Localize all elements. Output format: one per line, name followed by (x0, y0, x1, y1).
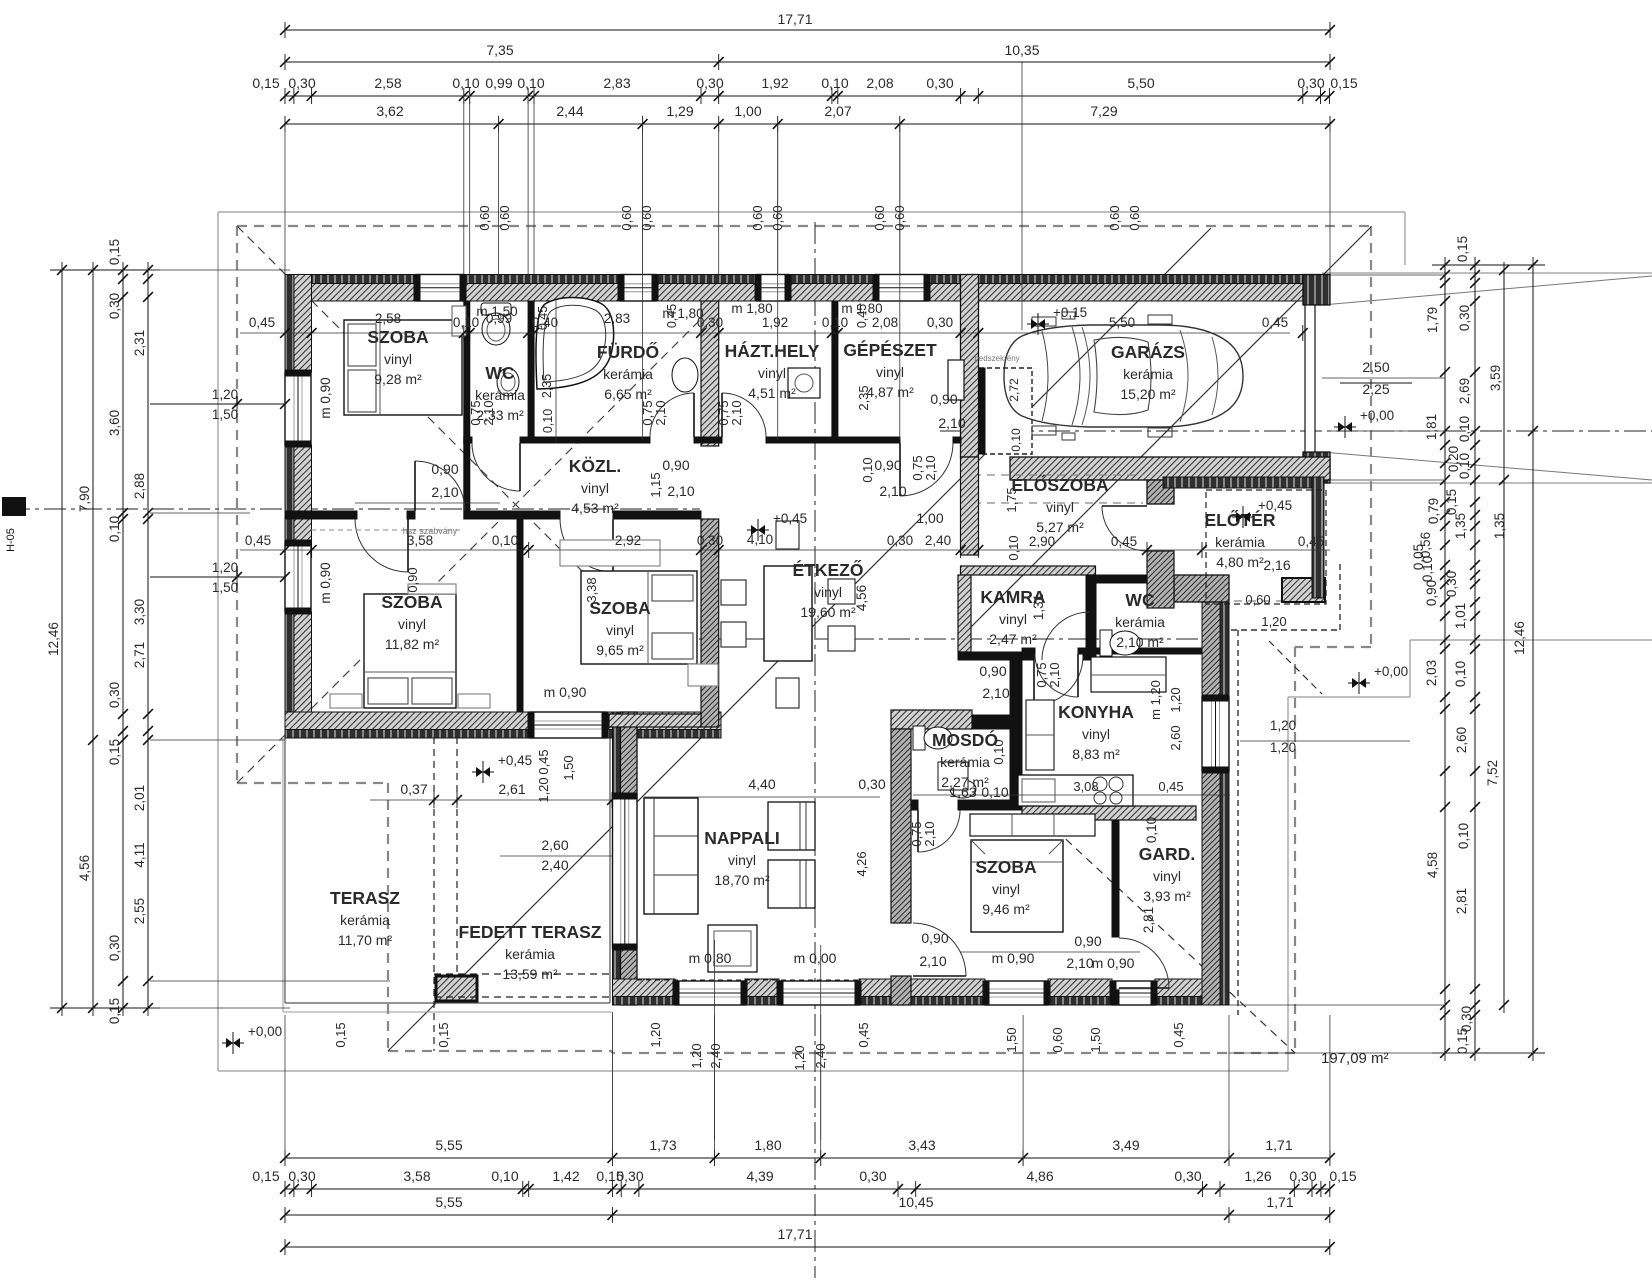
svg-text:0,15: 0,15 (1455, 1028, 1470, 1054)
svg-text:+0,15: +0,15 (1053, 305, 1087, 320)
svg-text:3,43: 3,43 (908, 1137, 935, 1153)
svg-text:2,88: 2,88 (132, 473, 147, 499)
svg-text:3,60: 3,60 (107, 410, 122, 436)
svg-text:9,28 m²: 9,28 m² (374, 371, 422, 387)
svg-text:0,30: 0,30 (1174, 1168, 1201, 1184)
svg-text:GARÁZS: GARÁZS (1111, 341, 1185, 362)
svg-text:2,83: 2,83 (604, 311, 630, 326)
svg-text:1,20: 1,20 (1261, 614, 1286, 629)
svg-text:+0,00: +0,00 (1360, 408, 1394, 423)
svg-text:0,45: 0,45 (855, 304, 869, 328)
svg-text:12,46: 12,46 (1512, 621, 1527, 655)
svg-text:0,10: 0,10 (541, 409, 555, 433)
svg-text:2,44: 2,44 (556, 103, 583, 119)
svg-text:WC: WC (1125, 590, 1155, 610)
svg-text:0,10: 0,10 (822, 315, 848, 330)
svg-text:4,56: 4,56 (77, 855, 92, 881)
svg-text:11,82 m²: 11,82 m² (385, 636, 440, 652)
svg-text:0,45: 0,45 (1111, 534, 1137, 549)
svg-text:1,71: 1,71 (1265, 1137, 1292, 1153)
svg-text:TERASZ: TERASZ (330, 888, 400, 908)
svg-text:vinyl: vinyl (814, 584, 842, 600)
svg-text:11,70 m²: 11,70 m² (338, 932, 393, 948)
svg-text:1,31: 1,31 (1031, 594, 1046, 620)
svg-text:15,20 m²: 15,20 m² (1120, 386, 1176, 402)
svg-text:H-05: H-05 (5, 528, 17, 552)
svg-text:m 0,90: m 0,90 (544, 684, 587, 700)
svg-text:ÉTKEZŐ: ÉTKEZŐ (793, 559, 864, 580)
svg-text:m 0,90: m 0,90 (318, 377, 333, 418)
svg-text:4,11: 4,11 (132, 842, 147, 867)
svg-text:3,58: 3,58 (403, 1168, 430, 1184)
svg-text:0,15: 0,15 (107, 998, 122, 1024)
svg-text:0,10: 0,10 (452, 75, 479, 91)
svg-text:0,30: 0,30 (859, 1168, 886, 1184)
svg-text:0,30: 0,30 (1289, 1168, 1316, 1184)
svg-text:0,30: 0,30 (616, 1168, 643, 1184)
svg-text:m 0,90: m 0,90 (992, 950, 1035, 966)
svg-text:0,45: 0,45 (1158, 779, 1183, 794)
svg-text:4,26: 4,26 (854, 851, 869, 876)
svg-text:2,10: 2,10 (431, 484, 458, 500)
svg-text:0,60: 0,60 (770, 205, 785, 230)
svg-text:0,60: 0,60 (619, 205, 634, 230)
svg-text:4,40: 4,40 (748, 776, 775, 792)
svg-text:0,15: 0,15 (252, 1168, 279, 1184)
svg-text:NAPPALI: NAPPALI (704, 828, 780, 848)
svg-text:1,00: 1,00 (916, 510, 943, 526)
svg-text:0,10: 0,10 (1456, 823, 1471, 849)
svg-text:2,10: 2,10 (653, 400, 668, 425)
svg-text:2,40: 2,40 (813, 1043, 828, 1068)
svg-text:0,90: 0,90 (930, 391, 957, 407)
svg-text:0,60: 0,60 (872, 205, 887, 230)
svg-text:kerámia: kerámia (1123, 366, 1173, 382)
svg-text:1,42: 1,42 (552, 1168, 579, 1184)
svg-text:2,35: 2,35 (856, 385, 871, 410)
svg-text:7,29: 7,29 (1090, 103, 1117, 119)
svg-text:0,90: 0,90 (431, 461, 458, 477)
svg-text:0,90: 0,90 (874, 457, 901, 473)
svg-text:4,53 m²: 4,53 m² (571, 500, 619, 516)
svg-text:0,15: 0,15 (1444, 489, 1459, 515)
svg-text:17,71: 17,71 (777, 11, 812, 27)
svg-text:0,15: 0,15 (1455, 236, 1470, 262)
svg-text:SZOBA: SZOBA (975, 857, 1037, 877)
svg-text:kerámia: kerámia (1215, 534, 1265, 550)
svg-text:0,60: 0,60 (892, 205, 907, 230)
svg-text:0,30: 0,30 (1457, 305, 1472, 331)
svg-text:9,46 m²: 9,46 m² (982, 901, 1030, 917)
svg-text:0,90: 0,90 (405, 567, 420, 592)
svg-text:kerámia: kerámia (505, 946, 555, 962)
svg-text:m 0,00: m 0,00 (794, 950, 837, 966)
svg-text:vinyl: vinyl (999, 611, 1027, 627)
svg-text:vinyl: vinyl (1153, 868, 1181, 884)
svg-text:+0,00: +0,00 (248, 1024, 282, 1039)
svg-text:4,58: 4,58 (1425, 852, 1440, 878)
svg-text:0,60: 0,60 (750, 205, 765, 230)
svg-text:2,10: 2,10 (879, 483, 906, 499)
svg-text:6,65 m²: 6,65 m² (604, 386, 652, 402)
svg-text:0,15: 0,15 (252, 75, 279, 91)
svg-text:GARD.: GARD. (1139, 844, 1195, 864)
svg-text:3,59: 3,59 (1488, 365, 1503, 391)
svg-text:0,10: 0,10 (517, 75, 544, 91)
svg-text:8,83 m²: 8,83 m² (1072, 746, 1120, 762)
svg-text:1,20: 1,20 (648, 1022, 663, 1047)
svg-text:1,00: 1,00 (734, 103, 761, 119)
svg-text:1,75: 1,75 (1004, 487, 1019, 512)
svg-text:2,40: 2,40 (925, 533, 951, 548)
svg-text:KÖZL.: KÖZL. (569, 456, 622, 476)
svg-text:2,81: 2,81 (1141, 907, 1156, 933)
svg-text:0,10: 0,10 (1420, 556, 1435, 582)
svg-text:0,45: 0,45 (1298, 534, 1324, 549)
svg-text:0,90: 0,90 (921, 930, 948, 946)
svg-text:vinyl: vinyl (606, 622, 634, 638)
svg-text:kerámia: kerámia (603, 366, 653, 382)
svg-text:3,62: 3,62 (376, 103, 403, 119)
svg-text:ELŐSZOBA: ELŐSZOBA (1011, 474, 1109, 495)
svg-text:2,60: 2,60 (1454, 727, 1469, 753)
svg-text:0,10: 0,10 (981, 784, 1008, 800)
svg-text:0,60: 0,60 (497, 205, 512, 230)
svg-text:1,20: 1,20 (689, 1043, 704, 1068)
svg-text:0,45: 0,45 (536, 749, 551, 774)
svg-text:5,50: 5,50 (1127, 75, 1154, 91)
svg-text:1,20: 1,20 (1168, 687, 1183, 712)
svg-text:0,15: 0,15 (1330, 75, 1357, 91)
svg-text:0,15: 0,15 (436, 1022, 451, 1047)
svg-text:0,60: 0,60 (1127, 205, 1142, 230)
svg-text:4,87 m²: 4,87 m² (866, 384, 914, 400)
svg-text:2,08: 2,08 (866, 75, 893, 91)
svg-text:0,30: 0,30 (1444, 571, 1459, 597)
svg-text:1,81: 1,81 (1424, 414, 1439, 440)
svg-text:1,50: 1,50 (212, 580, 238, 595)
svg-text:0,10: 0,10 (1453, 661, 1468, 687)
svg-text:2,10: 2,10 (667, 483, 694, 499)
svg-text:vinyl: vinyl (581, 480, 609, 496)
svg-text:0,10: 0,10 (1457, 416, 1472, 442)
svg-text:0,60: 0,60 (639, 205, 654, 230)
svg-text:2,83: 2,83 (603, 75, 630, 91)
svg-text:1,20: 1,20 (212, 560, 238, 575)
svg-text:KONYHA: KONYHA (1058, 702, 1134, 722)
svg-text:0,10: 0,10 (991, 739, 1006, 764)
svg-text:2,58: 2,58 (375, 311, 401, 326)
svg-text:4,80 m²: 4,80 m² (1216, 554, 1264, 570)
svg-text:10,35: 10,35 (1004, 42, 1039, 58)
svg-text:197,09 m²: 197,09 m² (1321, 1050, 1389, 1067)
svg-text:2,60: 2,60 (1168, 725, 1183, 750)
svg-text:2,10: 2,10 (922, 821, 937, 846)
svg-text:0,45: 0,45 (249, 315, 275, 330)
svg-text:1,79: 1,79 (1425, 307, 1440, 333)
svg-text:2,47 m²: 2,47 m² (989, 631, 1037, 647)
svg-text:7,90: 7,90 (77, 486, 92, 512)
svg-text:0,30: 0,30 (107, 293, 122, 319)
svg-text:12,46: 12,46 (46, 622, 61, 656)
svg-text:0,60: 0,60 (1050, 1027, 1065, 1052)
svg-text:1,92: 1,92 (761, 75, 788, 91)
svg-text:2,10: 2,10 (982, 685, 1009, 701)
svg-text:2,10 m²: 2,10 m² (1116, 634, 1164, 650)
svg-text:1,50: 1,50 (561, 755, 576, 780)
svg-text:vinyl: vinyl (992, 881, 1020, 897)
svg-text:2,71: 2,71 (132, 642, 147, 668)
svg-text:1,20: 1,20 (212, 387, 238, 402)
svg-text:0,90: 0,90 (662, 457, 689, 473)
svg-text:2,35: 2,35 (540, 374, 554, 398)
svg-text:1,80: 1,80 (754, 1137, 781, 1153)
svg-text:m 1,50: m 1,50 (476, 304, 517, 319)
svg-text:3,93 m²: 3,93 m² (1143, 888, 1191, 904)
svg-text:0,30: 0,30 (1297, 75, 1324, 91)
svg-text:pedszekrény: pedszekrény (974, 354, 1019, 363)
svg-text:1,35: 1,35 (1492, 513, 1507, 539)
svg-text:MOSDÓ: MOSDÓ (932, 729, 998, 750)
svg-text:0,30: 0,30 (887, 533, 913, 548)
svg-text:2,40: 2,40 (541, 857, 568, 873)
svg-text:3,30: 3,30 (132, 599, 147, 625)
svg-text:1,35: 1,35 (1453, 513, 1468, 539)
svg-text:0,10: 0,10 (491, 1168, 518, 1184)
svg-text:10,45: 10,45 (898, 1194, 933, 1210)
svg-text:hsz szabvány: hsz szabvány (403, 526, 458, 536)
svg-text:17,71: 17,71 (777, 1226, 812, 1242)
svg-text:m 0,90: m 0,90 (318, 562, 333, 603)
svg-text:FÜRDŐ: FÜRDŐ (597, 341, 659, 362)
svg-text:1,92: 1,92 (762, 315, 788, 330)
svg-text:+0,00: +0,00 (1374, 664, 1408, 679)
svg-text:4,56: 4,56 (854, 585, 869, 611)
svg-text:2,58: 2,58 (374, 75, 401, 91)
svg-text:0,15: 0,15 (107, 739, 122, 765)
svg-text:0,60: 0,60 (1107, 205, 1122, 230)
svg-text:1,26: 1,26 (1244, 1168, 1271, 1184)
svg-text:0,45: 0,45 (1262, 315, 1288, 330)
svg-text:4,10: 4,10 (747, 532, 773, 547)
svg-text:m 1,20: m 1,20 (1148, 680, 1163, 720)
svg-text:2,10: 2,10 (938, 415, 965, 431)
svg-text:kerámia: kerámia (1115, 614, 1165, 630)
svg-text:0,15: 0,15 (333, 1022, 348, 1047)
svg-text:m 0,80: m 0,80 (689, 950, 732, 966)
svg-text:2,40: 2,40 (708, 1043, 723, 1068)
svg-text:GÉPÉSZET: GÉPÉSZET (843, 339, 937, 360)
svg-text:0,30: 0,30 (107, 935, 122, 961)
svg-text:2,81: 2,81 (1454, 888, 1469, 914)
svg-text:SZOBA: SZOBA (367, 327, 429, 347)
svg-text:2,72: 2,72 (1007, 378, 1021, 402)
svg-text:2,08: 2,08 (872, 315, 898, 330)
svg-text:kerámia: kerámia (940, 754, 990, 770)
svg-text:0,37: 0,37 (400, 781, 427, 797)
svg-text:19,60 m²: 19,60 m² (800, 604, 856, 620)
svg-text:0,30: 0,30 (927, 315, 953, 330)
svg-text:0,30: 0,30 (288, 75, 315, 91)
svg-text:4,51 m²: 4,51 m² (748, 385, 796, 401)
svg-text:2,10: 2,10 (923, 455, 938, 480)
svg-text:vinyl: vinyl (728, 852, 756, 868)
svg-text:0,30: 0,30 (858, 776, 885, 792)
svg-text:2,50: 2,50 (1362, 359, 1389, 375)
svg-text:0,15: 0,15 (107, 239, 122, 265)
svg-text:0,60: 0,60 (477, 205, 492, 230)
svg-text:2,61: 2,61 (498, 781, 525, 797)
svg-text:0,45: 0,45 (536, 306, 550, 330)
svg-text:2,31: 2,31 (132, 330, 147, 356)
svg-text:+0,45: +0,45 (1258, 498, 1292, 513)
svg-text:4,86: 4,86 (1026, 1168, 1053, 1184)
svg-text:0,90: 0,90 (1424, 580, 1439, 606)
svg-text:SZOBA: SZOBA (381, 592, 443, 612)
svg-text:3,38: 3,38 (584, 577, 599, 602)
svg-text:0,10: 0,10 (1457, 453, 1472, 479)
svg-text:3,08: 3,08 (1073, 779, 1098, 794)
svg-text:0,10: 0,10 (107, 516, 122, 542)
svg-text:2,55: 2,55 (132, 898, 147, 924)
svg-text:HÁZT.HELY: HÁZT.HELY (725, 340, 820, 361)
svg-text:2,07: 2,07 (824, 103, 851, 119)
svg-text:1,20: 1,20 (792, 1045, 807, 1070)
svg-text:+0,45: +0,45 (498, 753, 532, 768)
svg-text:3,49: 3,49 (1112, 1137, 1139, 1153)
svg-text:2,10: 2,10 (919, 953, 946, 969)
svg-text:2,10: 2,10 (481, 400, 496, 425)
svg-text:2,10: 2,10 (729, 400, 744, 425)
svg-text:1,50: 1,50 (1004, 1027, 1019, 1052)
svg-text:0,45: 0,45 (245, 533, 271, 548)
svg-text:0,30: 0,30 (696, 75, 723, 91)
svg-text:0,15: 0,15 (1329, 1168, 1356, 1184)
svg-text:0,99: 0,99 (485, 75, 512, 91)
svg-text:vinyl: vinyl (384, 351, 412, 367)
svg-text:0,10: 0,10 (453, 315, 479, 330)
svg-text:7,35: 7,35 (486, 42, 513, 58)
svg-text:1,01: 1,01 (1453, 603, 1468, 629)
svg-text:m 1,80: m 1,80 (731, 301, 772, 316)
svg-text:2,10: 2,10 (1047, 662, 1062, 687)
svg-text:0,45: 0,45 (856, 1022, 871, 1047)
svg-text:2,01: 2,01 (132, 785, 147, 811)
svg-text:2,10: 2,10 (1066, 955, 1093, 971)
svg-text:2,03: 2,03 (1424, 660, 1439, 686)
svg-text:0,10: 0,10 (860, 457, 875, 482)
svg-text:0,90: 0,90 (1074, 933, 1101, 949)
svg-text:2,16: 2,16 (1263, 557, 1290, 573)
svg-text:5,55: 5,55 (435, 1194, 462, 1210)
svg-text:1,20: 1,20 (1270, 718, 1296, 733)
svg-text:2,60: 2,60 (541, 837, 568, 853)
svg-text:0,30: 0,30 (107, 682, 122, 708)
svg-text:0,10: 0,10 (821, 75, 848, 91)
svg-text:kerámia: kerámia (340, 912, 390, 928)
svg-text:0,30: 0,30 (926, 75, 953, 91)
svg-text:1,29: 1,29 (666, 103, 693, 119)
svg-text:+0,45: +0,45 (773, 511, 807, 526)
svg-text:18,70 m²: 18,70 m² (714, 872, 770, 888)
svg-text:4,39: 4,39 (746, 1168, 773, 1184)
svg-text:5,50: 5,50 (1109, 315, 1135, 330)
svg-text:1,15: 1,15 (648, 472, 663, 497)
svg-text:0,90: 0,90 (979, 663, 1006, 679)
svg-text:0,10: 0,10 (492, 533, 518, 548)
svg-text:1,20: 1,20 (536, 777, 551, 802)
svg-text:0,60: 0,60 (1245, 592, 1270, 607)
svg-text:5,55: 5,55 (435, 1137, 462, 1153)
svg-text:0,45: 0,45 (1171, 1022, 1186, 1047)
svg-text:7,52: 7,52 (1485, 760, 1500, 786)
svg-text:0,45: 0,45 (665, 304, 679, 328)
svg-text:vinyl: vinyl (1082, 726, 1110, 742)
svg-text:2,69: 2,69 (1457, 378, 1472, 404)
svg-text:1,20: 1,20 (1270, 740, 1296, 755)
svg-text:1,50: 1,50 (1088, 1027, 1103, 1052)
svg-text:0,30: 0,30 (288, 1168, 315, 1184)
svg-text:1,73: 1,73 (649, 1137, 676, 1153)
svg-text:0,30: 0,30 (697, 533, 723, 548)
svg-text:0,10: 0,10 (1009, 428, 1023, 452)
svg-text:vinyl: vinyl (758, 365, 786, 381)
svg-text:1,63: 1,63 (949, 784, 976, 800)
svg-text:2,92: 2,92 (615, 533, 641, 548)
svg-text:1,50: 1,50 (212, 407, 238, 422)
svg-text:2,90: 2,90 (1029, 534, 1055, 549)
svg-text:0,10: 0,10 (1006, 535, 1021, 560)
svg-text:5,27 m²: 5,27 m² (1036, 519, 1084, 535)
svg-text:13,59 m²: 13,59 m² (502, 966, 558, 982)
svg-text:vinyl: vinyl (398, 616, 426, 632)
svg-text:0,10: 0,10 (1144, 817, 1159, 843)
svg-text:9,65 m²: 9,65 m² (596, 642, 644, 658)
svg-text:WC: WC (485, 363, 515, 383)
svg-text:1,71: 1,71 (1266, 1194, 1293, 1210)
svg-text:FEDETT TERASZ: FEDETT TERASZ (459, 922, 602, 942)
svg-text:0,79: 0,79 (1426, 498, 1441, 524)
svg-text:vinyl: vinyl (1046, 499, 1074, 515)
svg-text:m 0,90: m 0,90 (1092, 955, 1135, 971)
